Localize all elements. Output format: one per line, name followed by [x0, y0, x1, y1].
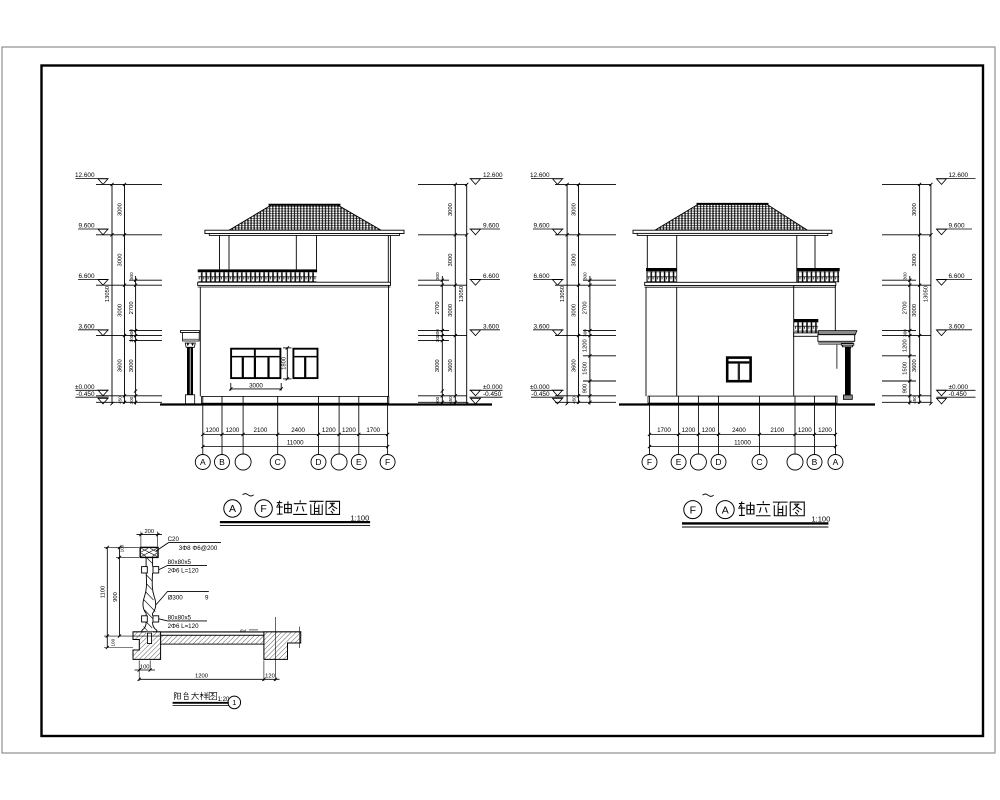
svg-text:300: 300 — [435, 396, 440, 404]
svg-text:1:100: 1:100 — [812, 515, 831, 524]
svg-text:3600: 3600 — [448, 359, 454, 372]
svg-text:2700: 2700 — [902, 301, 908, 314]
svg-text:F: F — [260, 503, 266, 515]
svg-text:3600: 3600 — [118, 359, 124, 372]
svg-text:3000: 3000 — [129, 359, 135, 372]
svg-text:2700: 2700 — [583, 301, 589, 314]
svg-text:6.600: 6.600 — [79, 273, 95, 280]
svg-text:900: 900 — [902, 384, 908, 394]
svg-text:3000: 3000 — [912, 304, 918, 317]
svg-text:3000: 3000 — [448, 203, 454, 216]
svg-text:1700: 1700 — [657, 427, 671, 434]
svg-text:A: A — [200, 457, 206, 467]
svg-text:6.600: 6.600 — [949, 273, 965, 280]
svg-text:2100: 2100 — [770, 427, 784, 434]
svg-text:80x80x5: 80x80x5 — [168, 559, 192, 566]
svg-text:6.600: 6.600 — [483, 273, 499, 280]
svg-text:450: 450 — [448, 396, 453, 404]
svg-text:3000: 3000 — [571, 254, 577, 267]
svg-text:1200: 1200 — [702, 427, 716, 434]
svg-text:A: A — [229, 503, 236, 515]
svg-text:300: 300 — [129, 272, 134, 280]
svg-text:C20: C20 — [168, 536, 180, 543]
svg-text:1200: 1200 — [902, 339, 908, 352]
svg-text:3000: 3000 — [118, 203, 124, 216]
svg-text:Φ4: Φ4 — [240, 629, 247, 634]
svg-text:200: 200 — [144, 529, 154, 535]
svg-text:1200: 1200 — [226, 427, 240, 434]
svg-text:12.600: 12.600 — [949, 172, 969, 179]
svg-text:9: 9 — [205, 594, 209, 601]
svg-text:9.600: 9.600 — [534, 223, 550, 230]
svg-text:3000: 3000 — [448, 304, 454, 317]
svg-text:3000: 3000 — [118, 254, 124, 267]
svg-text:120: 120 — [265, 673, 275, 679]
svg-text:300: 300 — [435, 272, 440, 280]
svg-text:C: C — [756, 457, 762, 467]
svg-text:F: F — [385, 457, 390, 467]
svg-text:450: 450 — [118, 396, 123, 404]
svg-text:12.600: 12.600 — [483, 172, 503, 179]
svg-text:A: A — [722, 504, 729, 516]
svg-text:450: 450 — [571, 396, 576, 404]
svg-text:2Φ6 L=120: 2Φ6 L=120 — [168, 568, 199, 575]
svg-text:300: 300 — [435, 334, 440, 342]
svg-text:2700: 2700 — [129, 301, 135, 314]
svg-text:300: 300 — [129, 334, 134, 342]
svg-text:3000: 3000 — [571, 304, 577, 317]
svg-text:300: 300 — [902, 272, 907, 280]
svg-text:E: E — [676, 457, 682, 467]
svg-text:11000: 11000 — [287, 439, 304, 446]
svg-text:300: 300 — [129, 396, 134, 404]
svg-text:9.600: 9.600 — [79, 223, 95, 230]
svg-text:100: 100 — [111, 638, 116, 646]
svg-text:D: D — [315, 457, 321, 467]
svg-text:300: 300 — [583, 272, 588, 280]
svg-text:3000: 3000 — [912, 254, 918, 267]
svg-text:1200: 1200 — [195, 673, 208, 679]
svg-text:2700: 2700 — [435, 301, 441, 314]
svg-text:E: E — [356, 457, 362, 467]
svg-text:2400: 2400 — [732, 427, 746, 434]
svg-text:13050: 13050 — [459, 286, 465, 302]
svg-text:3000: 3000 — [249, 382, 263, 389]
svg-text:13050: 13050 — [105, 286, 111, 302]
svg-text:3.600: 3.600 — [483, 323, 499, 330]
svg-text:3600: 3600 — [912, 359, 918, 372]
svg-text:1500: 1500 — [583, 362, 589, 375]
svg-text:11000: 11000 — [734, 439, 751, 446]
svg-text:B: B — [219, 457, 225, 467]
svg-text:F: F — [690, 504, 696, 516]
svg-text:900: 900 — [583, 384, 589, 394]
svg-text:1200: 1200 — [818, 427, 832, 434]
svg-text:1200: 1200 — [798, 427, 812, 434]
svg-text:D: D — [715, 457, 721, 467]
svg-text:12.600: 12.600 — [530, 172, 550, 179]
svg-text:300: 300 — [583, 329, 588, 337]
svg-text:1200: 1200 — [583, 339, 589, 352]
svg-text:100: 100 — [140, 664, 150, 670]
svg-text:13050: 13050 — [560, 286, 566, 302]
svg-text:C: C — [275, 457, 281, 467]
svg-text:3.600: 3.600 — [79, 323, 95, 330]
svg-text:1200: 1200 — [342, 427, 356, 434]
svg-text:B: B — [812, 457, 818, 467]
svg-text:1200: 1200 — [322, 427, 336, 434]
svg-text:100: 100 — [119, 544, 124, 552]
svg-text:3000: 3000 — [118, 304, 124, 317]
svg-text:1800: 1800 — [281, 357, 287, 370]
svg-text:300: 300 — [902, 329, 907, 337]
svg-text:1500: 1500 — [902, 362, 908, 375]
svg-text:1700: 1700 — [366, 427, 380, 434]
svg-text:450: 450 — [912, 396, 917, 404]
svg-text:80x80x5: 80x80x5 — [168, 615, 192, 622]
svg-text:13050: 13050 — [923, 286, 929, 302]
svg-text:12.600: 12.600 — [75, 172, 95, 179]
svg-text:3Φ8 Φ6@200: 3Φ8 Φ6@200 — [179, 545, 218, 552]
svg-text:1200: 1200 — [206, 427, 220, 434]
svg-text:1200: 1200 — [682, 427, 696, 434]
svg-text:900: 900 — [113, 592, 119, 602]
svg-text:3600: 3600 — [571, 359, 577, 372]
svg-text:F: F — [647, 457, 652, 467]
svg-text:3.600: 3.600 — [534, 323, 550, 330]
svg-text:6.600: 6.600 — [534, 273, 550, 280]
svg-text:3000: 3000 — [912, 203, 918, 216]
svg-text:9.600: 9.600 — [483, 223, 499, 230]
svg-text:3000: 3000 — [571, 203, 577, 216]
svg-text:2400: 2400 — [291, 427, 305, 434]
svg-text:Ø300: Ø300 — [168, 594, 184, 601]
svg-text:2100: 2100 — [254, 427, 268, 434]
svg-text:2Φ6 L=120: 2Φ6 L=120 — [168, 623, 199, 630]
svg-text:1: 1 — [232, 698, 236, 707]
svg-text:3000: 3000 — [435, 359, 441, 372]
svg-text:1100: 1100 — [101, 586, 107, 598]
svg-text:9.600: 9.600 — [949, 223, 965, 230]
svg-text:3000: 3000 — [448, 254, 454, 267]
svg-text:3.600: 3.600 — [949, 323, 965, 330]
svg-text:A: A — [833, 457, 839, 467]
